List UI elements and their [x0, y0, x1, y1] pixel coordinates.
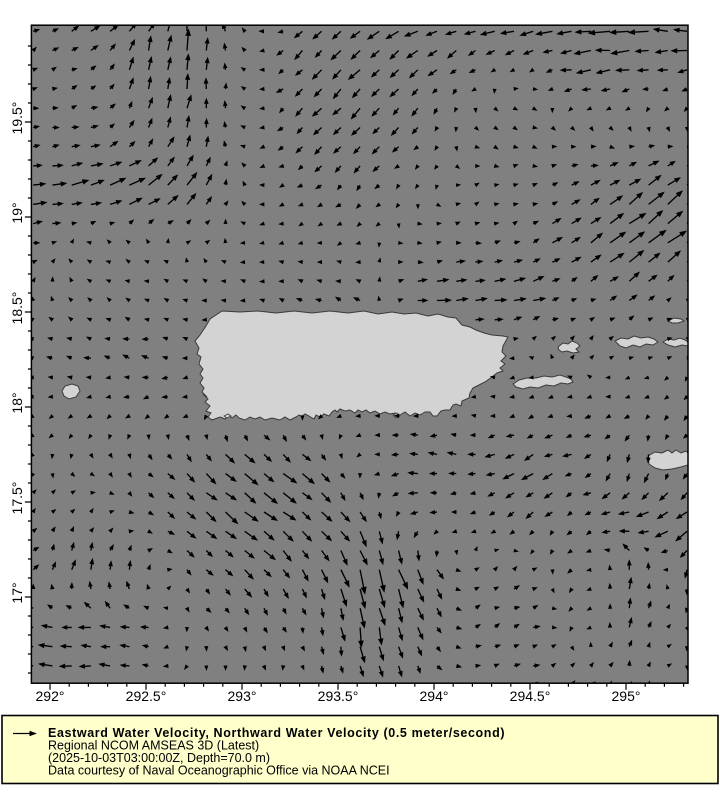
svg-text:18°: 18°	[9, 392, 25, 413]
svg-text:19.5°: 19.5°	[9, 102, 25, 135]
svg-text:18.5°: 18.5°	[9, 292, 25, 325]
svg-text:19°: 19°	[9, 202, 25, 223]
svg-text:293°: 293°	[228, 688, 257, 704]
svg-text:Data courtesy of Naval Oceanog: Data courtesy of Naval Oceanographic Off…	[48, 764, 390, 778]
svg-text:292.5°: 292.5°	[126, 688, 167, 704]
svg-text:17.5°: 17.5°	[9, 482, 25, 515]
svg-text:293.5°: 293.5°	[318, 688, 359, 704]
svg-text:294°: 294°	[420, 688, 449, 704]
svg-text:294.5°: 294.5°	[510, 688, 551, 704]
svg-text:292°: 292°	[36, 688, 65, 704]
svg-text:295°: 295°	[612, 688, 641, 704]
svg-text:17°: 17°	[9, 582, 25, 603]
